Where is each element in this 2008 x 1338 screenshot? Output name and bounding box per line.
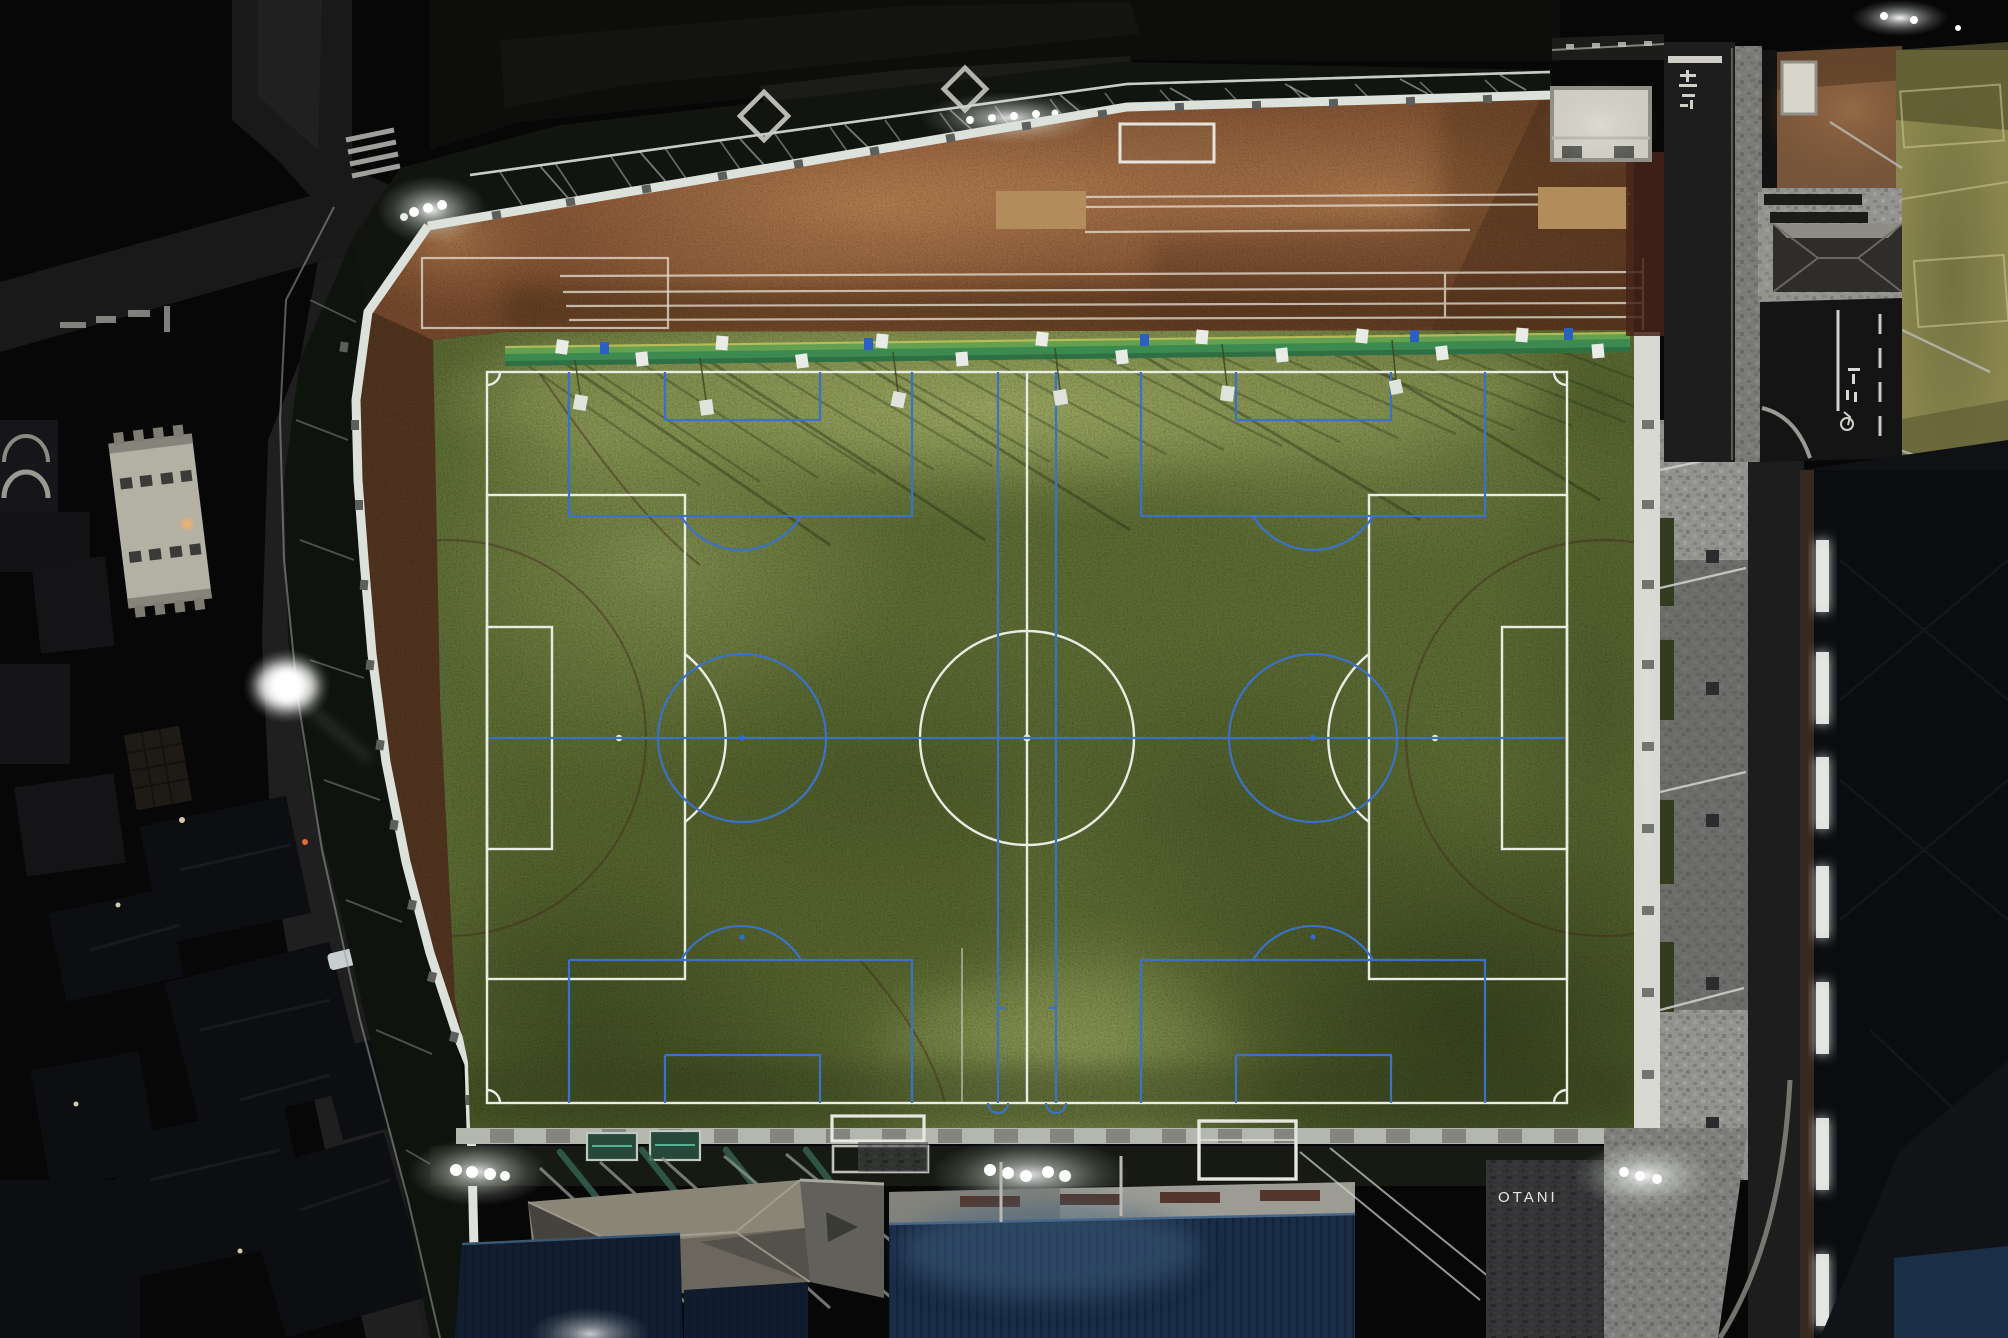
svg-text:OTANI: OTANI: [1498, 1189, 1558, 1206]
